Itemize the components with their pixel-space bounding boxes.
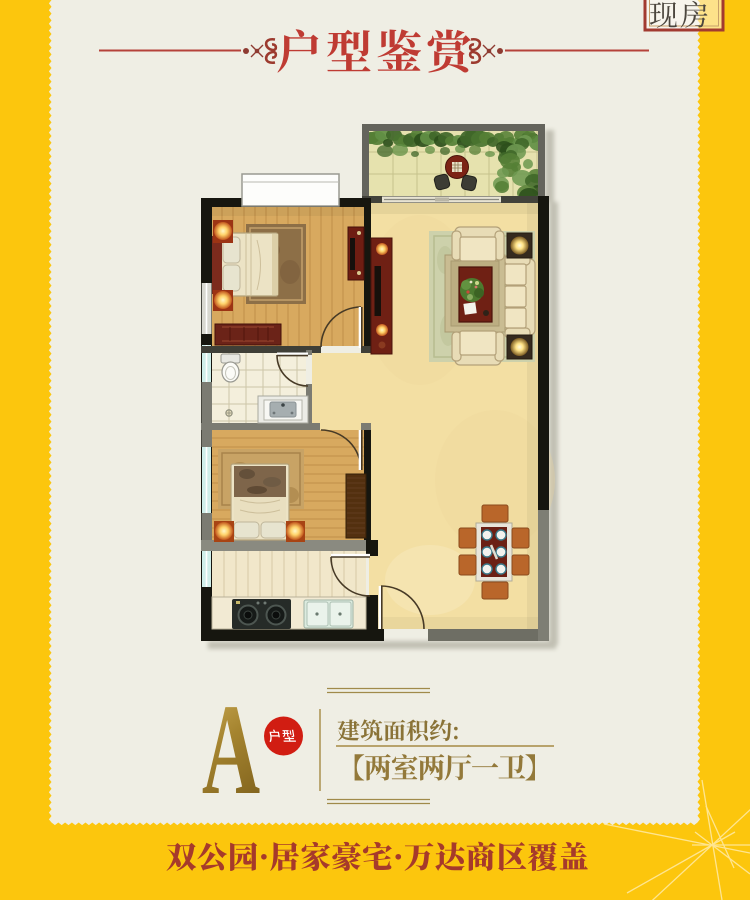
svg-text:A: A	[202, 679, 260, 822]
